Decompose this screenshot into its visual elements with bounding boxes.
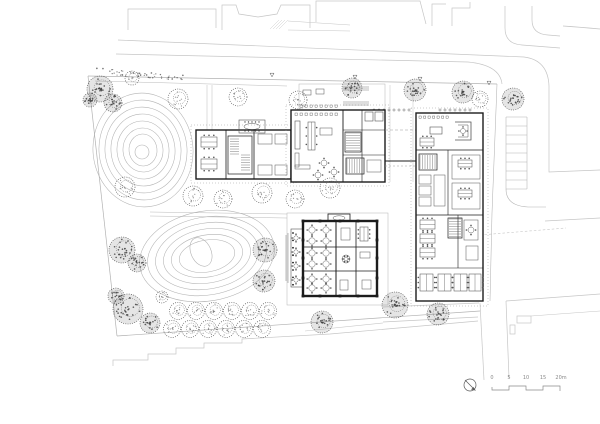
scale-label-15: 15 bbox=[540, 375, 546, 381]
scale-label-10: 10 bbox=[523, 375, 529, 381]
scale-label-5: 5 bbox=[507, 375, 510, 381]
scale-label-0: 0 bbox=[490, 375, 493, 381]
scale-label-20m: 20m bbox=[555, 375, 566, 381]
site-plan-canvas: 0 5 10 15 20m bbox=[0, 0, 600, 424]
north-west-wing bbox=[191, 120, 296, 183]
site-plan-svg bbox=[0, 0, 600, 424]
east-building bbox=[411, 108, 488, 306]
